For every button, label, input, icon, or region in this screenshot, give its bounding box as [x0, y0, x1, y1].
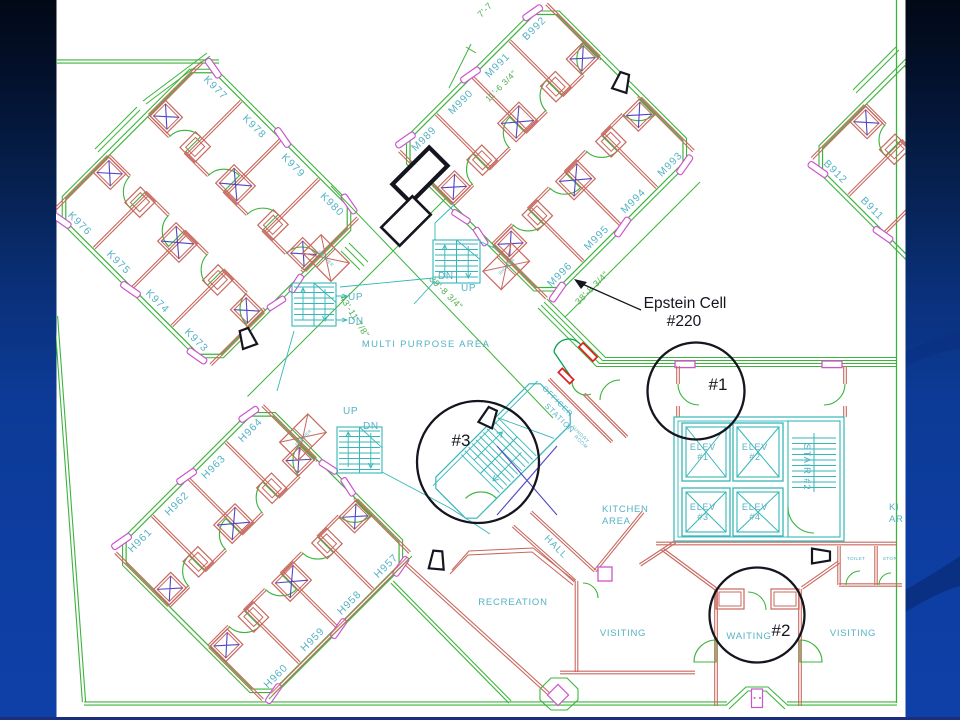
- svg-text:KITCHEN: KITCHEN: [602, 504, 649, 515]
- svg-text:Epstein Cell: Epstein Cell: [644, 295, 727, 312]
- svg-text:STOR: STOR: [883, 556, 898, 562]
- svg-text:AR: AR: [889, 514, 904, 525]
- svg-text:DN: DN: [363, 421, 379, 432]
- svg-text:VISITING: VISITING: [600, 628, 646, 639]
- svg-text:AREA: AREA: [602, 516, 631, 527]
- svg-text:#3: #3: [697, 512, 709, 522]
- svg-text:ELEV: ELEV: [742, 502, 768, 512]
- svg-text:WAITING: WAITING: [726, 631, 771, 642]
- svg-text:DN: DN: [438, 271, 454, 282]
- svg-text:#2: #2: [749, 452, 761, 462]
- svg-text:#220: #220: [667, 313, 702, 330]
- svg-text:RECREATION: RECREATION: [478, 597, 548, 608]
- svg-text:#3: #3: [452, 431, 471, 450]
- svg-text:KI: KI: [889, 502, 899, 513]
- svg-text:UP: UP: [343, 406, 358, 417]
- svg-text:ELEV: ELEV: [690, 502, 716, 512]
- svg-text:#2: #2: [772, 621, 791, 640]
- svg-text:UP: UP: [461, 283, 476, 294]
- svg-text:#4: #4: [749, 512, 761, 522]
- svg-text:DN: DN: [348, 316, 364, 327]
- svg-text:ELEV: ELEV: [742, 442, 768, 452]
- svg-text:TOILET: TOILET: [847, 556, 866, 562]
- svg-text:#1: #1: [697, 452, 709, 462]
- svg-text:UP: UP: [348, 292, 363, 303]
- svg-text:VISITING: VISITING: [830, 628, 876, 639]
- svg-text:MULTI PURPOSE AREA: MULTI PURPOSE AREA: [362, 339, 490, 350]
- svg-text:STAIR #2: STAIR #2: [801, 444, 812, 491]
- svg-text:#1: #1: [709, 375, 728, 394]
- svg-text:ELEV: ELEV: [690, 442, 716, 452]
